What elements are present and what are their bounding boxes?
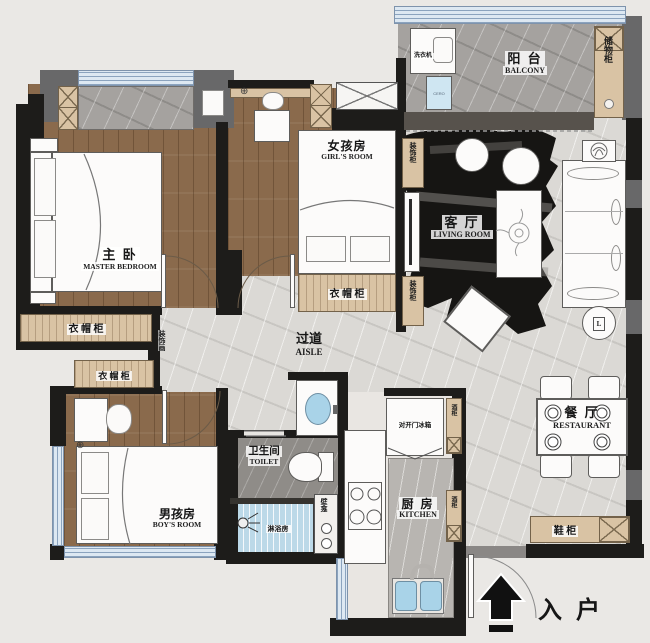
entry-label: 入 户 — [538, 590, 604, 625]
toilet-bowl — [288, 452, 322, 482]
bed-bench — [30, 292, 56, 304]
wine-cabinet-label: 酒柜 — [450, 404, 456, 416]
ceiling-symbol: ⊕ — [76, 440, 84, 451]
bay-cabinet — [58, 107, 78, 130]
dining-chair — [588, 454, 620, 478]
washbasin-counter — [296, 380, 338, 436]
wardrobe-label: 衣 帽 柜 — [20, 319, 152, 337]
balcony-threshold — [404, 112, 594, 130]
side-table — [455, 138, 489, 172]
wall — [16, 342, 158, 350]
nightstand — [30, 138, 58, 152]
dining-label: 餐 厅 RESTAURANT — [536, 406, 628, 430]
ac-platform — [336, 82, 398, 110]
door-leaf — [162, 390, 167, 444]
boys-chair — [106, 404, 132, 434]
floor-plan: 主 卧 MASTER BEDROOM 衣 帽 柜 衣 帽 柜 装饰画 ⊕ 女孩房… — [0, 0, 650, 643]
master-bedroom-label: 主 卧 MASTER BEDROOM — [60, 248, 180, 271]
deco-cabinet-label: 装饰柜 — [409, 280, 416, 301]
wall — [216, 122, 228, 256]
deco-art-label: 装饰画 — [158, 330, 165, 351]
pillow — [81, 452, 109, 494]
boys-desk — [74, 398, 108, 442]
window-balcony — [394, 6, 626, 24]
window-master — [78, 70, 194, 86]
girls-room-label: 女孩房 GIRL'S ROOM — [298, 140, 396, 162]
aisle-label: 过道 AISLE — [269, 332, 349, 357]
dining-chair — [540, 454, 572, 478]
pillow — [34, 220, 56, 278]
washing-machine-label: 洗衣机 — [408, 44, 438, 62]
pillow — [306, 236, 346, 262]
wall — [216, 250, 242, 315]
wardrobe-label: 衣 帽 柜 — [298, 284, 396, 302]
shower-label: 淋浴房 — [252, 518, 304, 536]
side-table — [502, 147, 540, 185]
storage-cabinet-label: 储物柜 — [603, 36, 612, 63]
kitchen-sink — [392, 578, 444, 614]
wall — [50, 544, 64, 560]
pillow — [81, 498, 109, 540]
window-kitchen-left — [336, 558, 348, 620]
sofa — [562, 160, 626, 308]
stove — [348, 482, 382, 530]
window-boys-bottom — [64, 546, 216, 558]
niche-label: 壁龛 — [320, 498, 327, 512]
basin — [305, 393, 331, 425]
wall — [526, 544, 644, 558]
entry-door-leaf — [468, 554, 474, 618]
toilet-label: 卫生间 TOILET — [238, 446, 290, 466]
dining-chair — [588, 376, 620, 400]
wall — [626, 180, 642, 208]
wall — [50, 386, 66, 446]
window-niche — [202, 90, 224, 116]
lamp-table: L — [582, 306, 616, 340]
living-room-label: 客 厅 LIVING ROOM — [412, 216, 512, 240]
wall — [330, 618, 462, 636]
boys-room-label: 男孩房 BOY'S ROOM — [132, 508, 222, 530]
master-bed — [52, 152, 162, 292]
ceiling-symbol: ⊕ — [240, 86, 248, 97]
bay-cabinet — [58, 86, 78, 108]
hatch-cabinet — [310, 84, 332, 128]
wardrobe-label: 衣 帽 柜 — [74, 366, 154, 384]
wall — [626, 470, 642, 500]
wall — [226, 432, 238, 556]
kitchen-label: 厨 房 KITCHEN — [382, 498, 454, 520]
deco-cabinet-label: 装饰柜 — [409, 142, 416, 163]
door-leaf — [290, 254, 295, 308]
wall — [622, 16, 642, 120]
wall — [626, 300, 642, 334]
plant-table — [582, 140, 616, 162]
water-point: CERO — [426, 76, 452, 110]
pillow — [34, 158, 56, 216]
dining-chair — [540, 376, 572, 400]
balcony-label: 阳 台 BALCONY — [470, 52, 580, 76]
pillow — [350, 236, 390, 262]
bay-window-sill — [78, 86, 194, 130]
girls-chair — [262, 92, 284, 110]
fridge-label: 对开门冰箱 — [386, 414, 444, 432]
shoe-cabinet-label: 鞋 柜 — [530, 521, 600, 539]
girls-desk — [254, 110, 290, 142]
entry-threshold — [466, 546, 526, 558]
wall — [332, 108, 406, 130]
window-boys-left — [52, 446, 64, 546]
